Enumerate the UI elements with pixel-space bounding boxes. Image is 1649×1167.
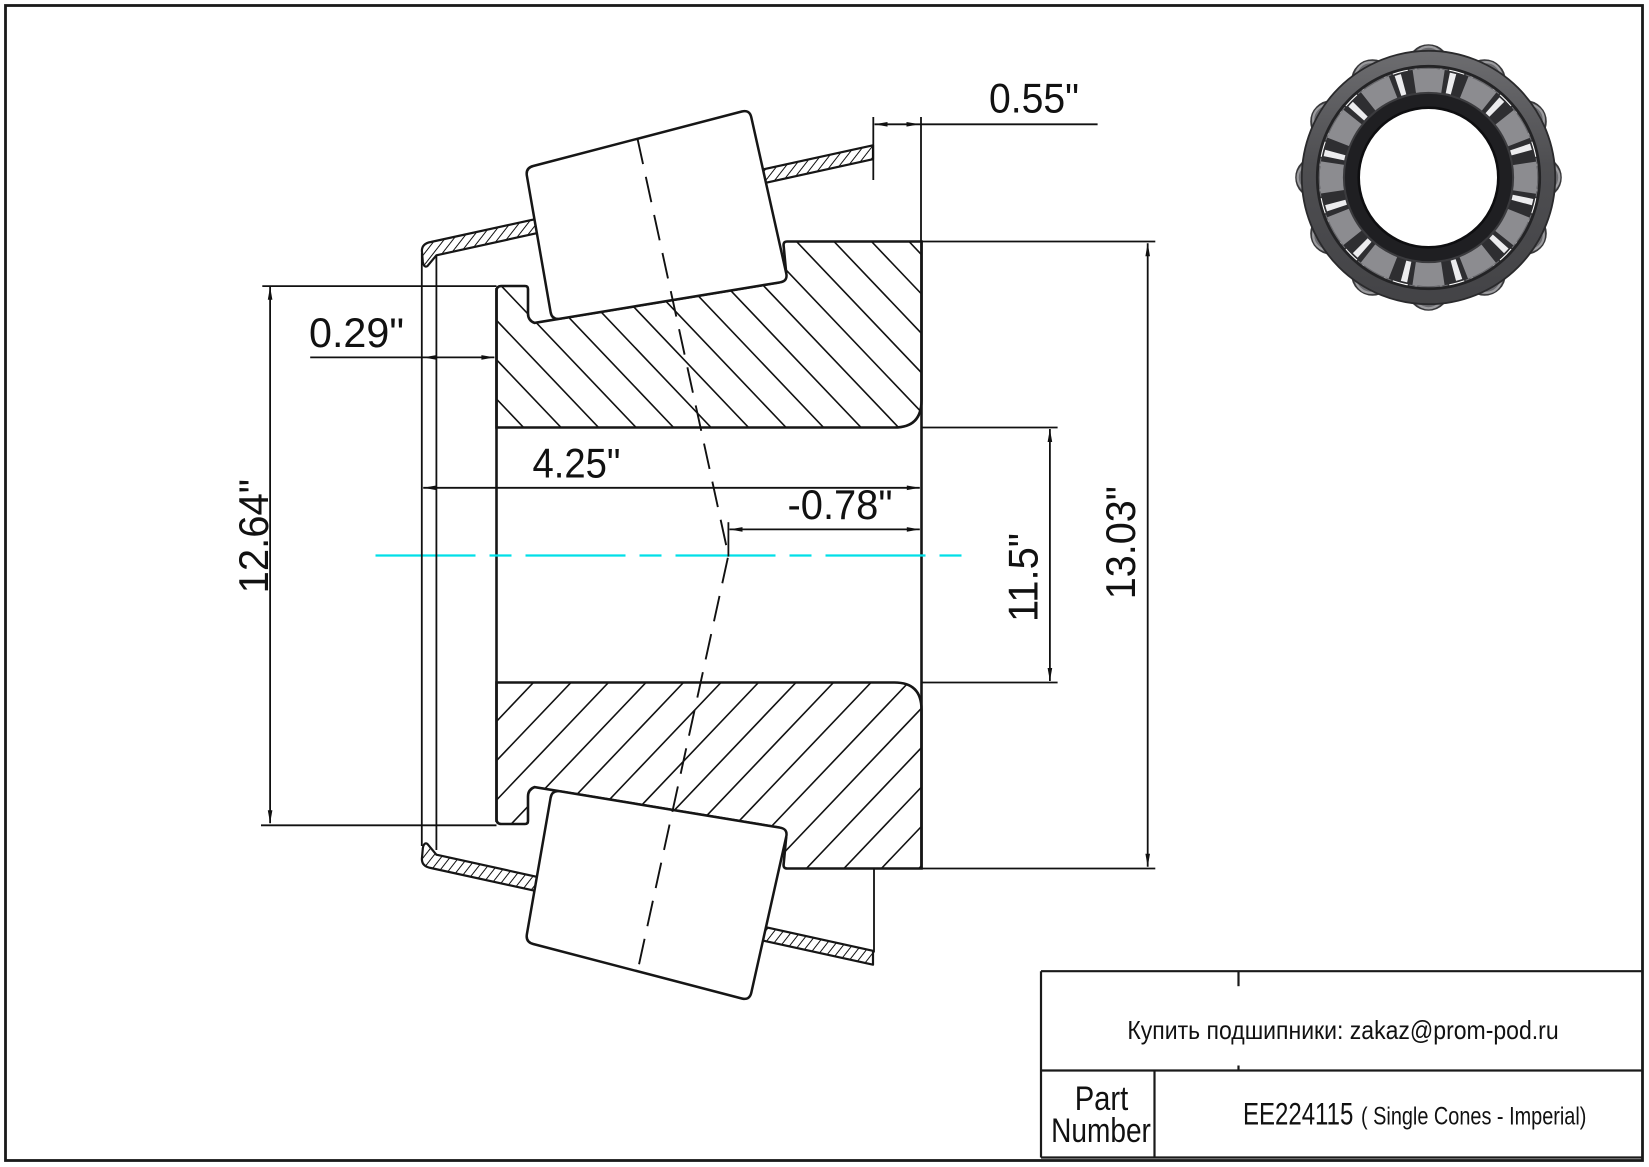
svg-text:0.55": 0.55" (989, 74, 1079, 121)
svg-text:11.5": 11.5" (1000, 533, 1047, 622)
svg-text:Number: Number (1051, 1112, 1151, 1150)
svg-text:Купить подшипники: zakaz@prom-: Купить подшипники: zakaz@prom-pod.ru (1127, 1015, 1558, 1045)
svg-text:12.64": 12.64" (230, 479, 277, 593)
svg-text:4.25": 4.25" (533, 440, 621, 487)
svg-text:EE224115: EE224115 (1243, 1096, 1353, 1132)
svg-text:-0.78": -0.78" (788, 481, 893, 528)
svg-text:0.29": 0.29" (309, 309, 404, 356)
svg-text:( Single Cones - Imperial): ( Single Cones - Imperial) (1361, 1103, 1586, 1131)
svg-text:13.03": 13.03" (1097, 486, 1144, 599)
